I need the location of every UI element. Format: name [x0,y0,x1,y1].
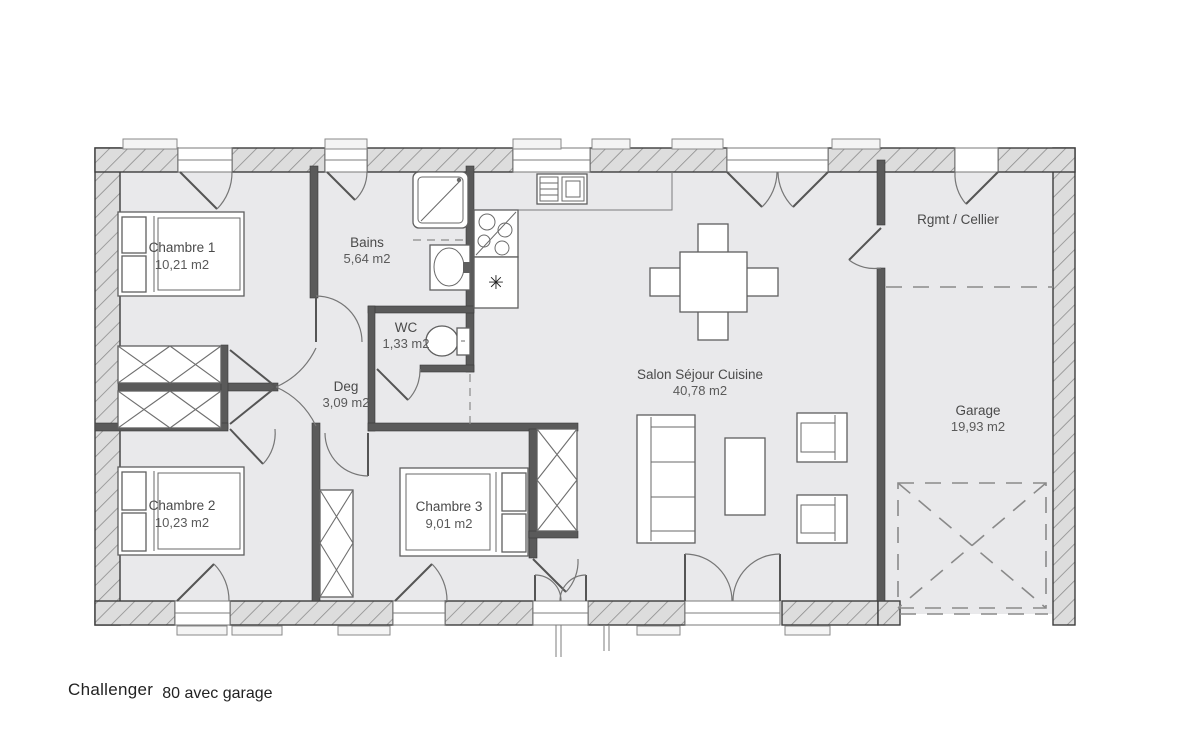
wall-placard3-bottom [529,531,578,538]
exterior-wall-left [95,148,120,625]
room-area-garage: 19,93 m2 [951,419,1005,434]
wall-chambre2-chambre3 [312,423,320,601]
plan-variant: 80 avec garage [162,685,272,702]
fridge-symbol: ✳ [488,273,504,294]
window-bains [325,148,367,172]
window-chambre3 [393,601,445,625]
window-chambre2 [175,601,230,625]
wall-placard-divider [118,383,278,391]
fridge-icon: ✳ [474,257,518,308]
floor [118,170,1057,614]
stove-icon [474,210,518,257]
room-label-salon: Salon Séjour Cuisine [637,367,763,382]
wall-placard-side [221,345,228,429]
toilet-icon [426,326,470,356]
window-cuisine [513,148,590,172]
placard-chambre3 [537,429,577,531]
room-area-wc: 1,33 m2 [383,336,430,351]
wall-wc-top [368,306,474,313]
room-area-chambre3: 9,01 m2 [426,516,473,531]
wall-chambre1-bains [310,166,318,298]
exterior-wall-right [1053,148,1075,625]
room-area-deg: 3,09 m2 [323,395,370,410]
room-label-deg: Deg [334,379,359,394]
wall-wc-bottom [420,365,474,372]
room-label-chambre1: Chambre 1 [149,240,216,255]
room-label-bains: Bains [350,235,384,250]
armchair [797,495,847,543]
french-door-salon-bottom [685,601,780,625]
bathroom-sink-icon [430,245,470,290]
room-label-cellier: Rgmt / Cellier [917,212,999,227]
dining-table [680,252,747,312]
room-label-chambre2: Chambre 2 [149,498,216,513]
room-label-garage: Garage [955,403,1000,418]
placard-chambre1 [118,346,221,383]
french-door-salon-top [727,148,828,172]
room-label-wc: WC [395,320,418,335]
window-chambre1 [178,148,232,172]
wall-wc-left [368,306,375,431]
chair [698,308,728,340]
door-cellier-exterior [955,148,998,172]
kitchen-sink [537,174,587,204]
floorplan-canvas: ✳ [0,0,1200,747]
room-area-bains: 5,64 m2 [344,251,391,266]
chair [650,268,684,296]
chair [698,224,728,256]
placard-chambre2 [118,391,221,428]
room-area-chambre2: 10,23 m2 [155,515,209,530]
armchair [797,413,847,462]
placard-chambre2-chambre3 [320,490,353,597]
wall-chambre3-right [529,429,537,558]
room-area-chambre1: 10,21 m2 [155,257,209,272]
plan-caption: Challenger80 avec garage [68,680,273,700]
wall-salon-garage [877,268,885,601]
room-label-chambre3: Chambre 3 [416,499,483,514]
plan-name: Challenger [68,680,153,699]
floorplan-drawing: ✳ [0,0,1200,747]
french-window-chambre3 [533,601,588,625]
wall-salon-cellier-upper [877,160,885,225]
coffee-table [725,438,765,515]
terrace-posts [556,625,609,657]
room-area-salon: 40,78 m2 [673,383,727,398]
chair [744,268,778,296]
sofa [637,415,695,543]
